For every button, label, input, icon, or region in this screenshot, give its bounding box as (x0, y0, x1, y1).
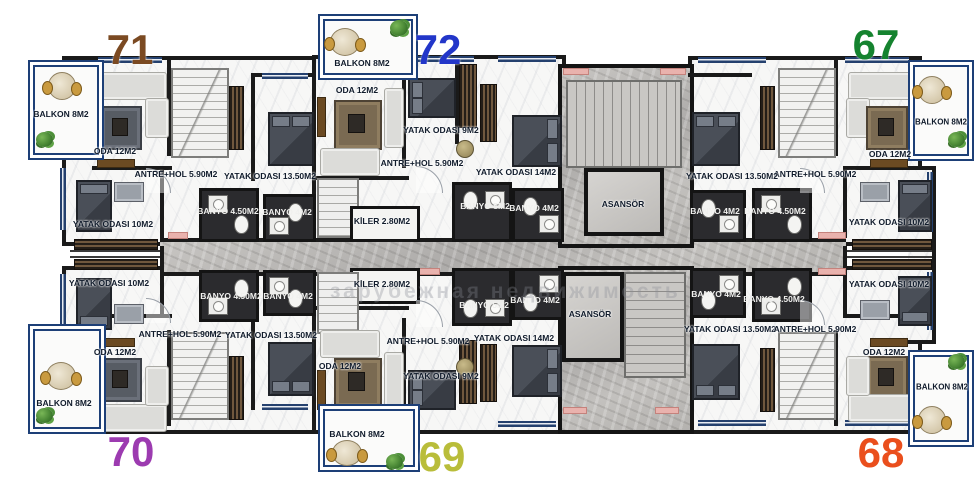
lintel (563, 407, 587, 414)
sofa (320, 330, 380, 358)
room-label: ODA 12M2 (319, 361, 361, 371)
plant-icon (948, 132, 965, 147)
dresser (860, 300, 890, 320)
room-label: ODA 12M2 (863, 347, 905, 357)
lintel (168, 232, 188, 239)
sofa (320, 148, 380, 176)
window (262, 404, 308, 410)
bed (692, 112, 740, 166)
window (498, 56, 556, 62)
room-label: ANTRE+HOL 5.90M2 (381, 158, 464, 168)
bed (268, 112, 314, 166)
room-label: ODA 12M2 (94, 146, 136, 156)
room-label: BANYO 4M2 (262, 207, 312, 217)
plant-icon (390, 20, 408, 36)
coffee-table (112, 118, 128, 136)
room-label: ANTRE+HOL 5.90M2 (774, 169, 857, 179)
wall-right-separator-2 (846, 256, 932, 258)
tv-cabinet (870, 159, 908, 168)
bed (408, 78, 456, 118)
plant-icon (36, 132, 53, 147)
balcony-table-67 (918, 76, 946, 104)
room-label: BANYO 4.50M2 (200, 291, 261, 301)
dresser (860, 182, 890, 202)
balcony-table-71 (48, 72, 76, 100)
apartment-number-71: 71 (107, 26, 154, 74)
room-label: BANYO 4M2 (263, 291, 313, 301)
room-label: ODA 12M2 (869, 149, 911, 159)
balcony-table-69 (332, 440, 362, 466)
room-label: YATAK ODASI 10M2 (73, 219, 153, 229)
coffee-table (878, 118, 894, 136)
room-label: YATAK ODASI 10M2 (849, 279, 929, 289)
balcony-70-label: BALKON 8M2 (36, 398, 91, 408)
balcony-67-label: BALKON 8M2 (915, 118, 967, 127)
bed (512, 115, 562, 167)
balcony-table-70 (46, 362, 76, 390)
balcony-72-label: BALKON 8M2 (334, 58, 389, 68)
pouf (456, 140, 474, 158)
dresser (114, 182, 144, 202)
bed (692, 344, 740, 400)
room-label: YATAK ODASI 14M2 (474, 333, 554, 343)
room-label: ODA 12M2 (94, 347, 136, 357)
duplex-stairs-67 (778, 68, 836, 158)
room-label: ANTRE+HOL 5.90M2 (387, 336, 470, 346)
bathroom-71-b (263, 194, 316, 242)
apartment-number-72: 72 (415, 26, 462, 74)
room-label: YATAK ODASI 13.50M2 (225, 330, 317, 340)
wall (688, 73, 752, 77)
wardrobe (760, 86, 775, 150)
tv-cabinet (870, 338, 908, 347)
room-label: ANTRE+HOL 5.90M2 (135, 169, 218, 179)
room-label: BANYO 4.50M2 (743, 294, 804, 304)
balcony-table-68 (918, 406, 946, 434)
balcony-71-label: BALKON 8M2 (33, 109, 88, 119)
balcony-68-label: BALKON 8M2 (916, 383, 968, 392)
coffee-table (878, 368, 894, 386)
lintel (818, 268, 846, 275)
duplex-stairs-68 (778, 332, 836, 420)
room-label: BANYO 4.50M2 (744, 206, 805, 216)
room-label: BANYO 4M2 (691, 289, 741, 299)
room-label: BANYO 4M2 (690, 206, 740, 216)
wardrobe-71-corridor (74, 239, 158, 250)
dresser (114, 304, 144, 324)
lintel (563, 68, 589, 75)
apartment-number-69: 69 (419, 433, 466, 480)
bed (512, 345, 562, 397)
coffee-table (112, 370, 128, 388)
window (262, 73, 308, 79)
sofa (384, 352, 404, 412)
bathroom-72-a (452, 182, 512, 242)
coffee-table (348, 372, 365, 391)
window (498, 421, 556, 427)
duplex-stairs-71 (171, 68, 229, 158)
wardrobe (760, 348, 775, 412)
balcony-table-72 (330, 28, 360, 56)
balcony-69-label: BALKON 8M2 (329, 429, 384, 439)
room-label: YATAK ODASI 13.50M2 (224, 171, 316, 181)
wardrobe (480, 344, 497, 402)
room-label: ODA 12M2 (336, 85, 378, 95)
lintel (818, 232, 846, 239)
elevator-bottom-label: ASANSÖR (569, 309, 612, 319)
room-label: YATAK ODASI 14M2 (476, 167, 556, 177)
bed (268, 342, 314, 396)
elevator-top-label: ASANSÖR (602, 199, 645, 209)
wardrobe-68-corridor (852, 259, 932, 270)
plant-icon (36, 408, 53, 423)
wardrobe (229, 86, 244, 150)
lintel (660, 68, 686, 75)
sofa (846, 356, 870, 396)
wall-left-separator (70, 250, 160, 252)
duplex-stairs-70 (171, 332, 229, 420)
watermark: зарубежная недвижимость (330, 280, 681, 304)
room-label: KİLER 2.80M2 (354, 216, 410, 226)
room-label: YATAK ODASI 13.50M2 (686, 171, 778, 181)
room-label: YATAK ODASI 13.50M2 (684, 324, 776, 334)
sofa (384, 88, 404, 148)
wardrobe (459, 64, 477, 128)
wardrobe (229, 356, 244, 420)
sofa (145, 366, 169, 406)
room-label: ANTRE+HOL 5.90M2 (774, 324, 857, 334)
sofa (145, 98, 169, 138)
wall-left-separator-2 (70, 256, 160, 258)
sofa (848, 394, 916, 422)
room-label: BANYO 4.50M2 (197, 206, 258, 216)
bathroom-72-b (512, 188, 564, 242)
wardrobe-70-corridor (74, 259, 158, 270)
wall (251, 73, 255, 181)
apartment-number-70: 70 (108, 428, 155, 476)
room-label: YATAK ODASI 10M2 (69, 278, 149, 288)
apartment-number-67: 67 (853, 21, 900, 69)
sofa (848, 72, 916, 100)
plant-icon (948, 354, 965, 369)
wardrobe-67-corridor (852, 239, 932, 250)
bathroom-67-a (690, 190, 746, 242)
room-label: YATAK ODASI 9M2 (403, 125, 478, 135)
floor-plan: ASANSÖR ASANSÖR (0, 0, 975, 480)
core-stairs-top (566, 80, 682, 168)
window (698, 57, 766, 63)
apartment-number-68: 68 (858, 429, 905, 477)
room-label: BANYO 4M2 (509, 203, 559, 213)
wall (843, 246, 847, 318)
coffee-table (348, 114, 365, 133)
room-label: YATAK ODASI 9M2 (403, 371, 478, 381)
room-label: ANTRE+HOL 5.90M2 (139, 329, 222, 339)
tv-cabinet (317, 97, 326, 137)
tv-cabinet (97, 159, 135, 168)
wardrobe (480, 84, 497, 142)
window (60, 168, 66, 230)
lintel (655, 407, 679, 414)
room-label: YATAK ODASI 10M2 (849, 217, 929, 227)
sofa (93, 72, 167, 100)
plant-icon (386, 454, 403, 469)
window (698, 420, 766, 426)
balcony-67 (908, 60, 974, 161)
room-label: BANYO 5M2 (460, 201, 510, 211)
wall-right-separator (846, 250, 932, 252)
